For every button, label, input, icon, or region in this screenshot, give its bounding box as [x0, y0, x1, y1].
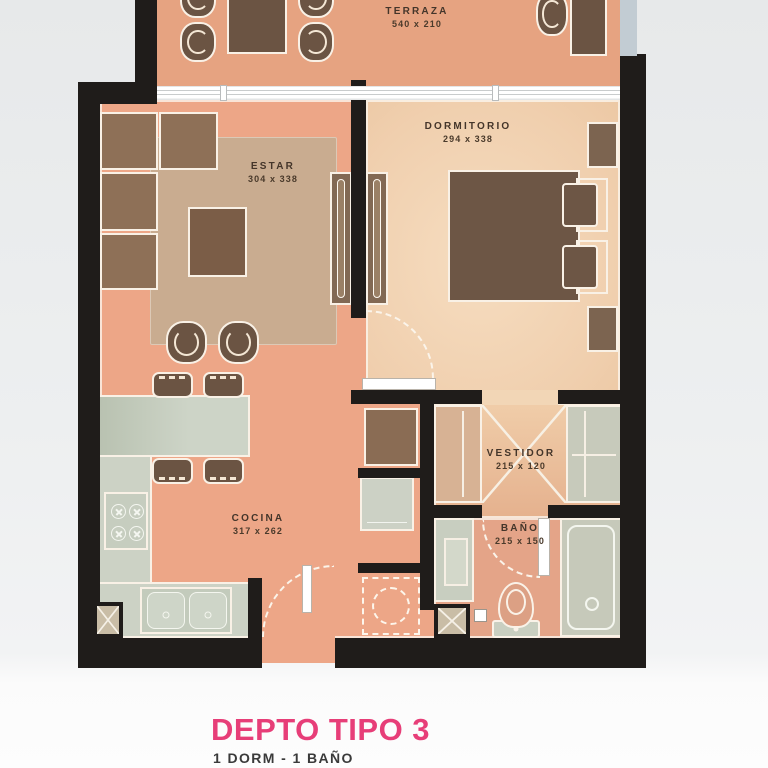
room-label-estar: ESTAR 304 x 338	[248, 161, 298, 184]
door-stop-fixture	[474, 609, 487, 622]
stove	[104, 492, 148, 550]
terrace-side-table	[570, 0, 607, 56]
terrace-lounge-chair	[536, 0, 568, 36]
plan-title: DEPTO TIPO 3	[211, 712, 430, 748]
kitchen-sink	[140, 587, 232, 634]
terrace-dining-table	[227, 0, 287, 54]
window-mullion-tick	[492, 85, 499, 101]
nightstand	[587, 122, 618, 168]
hall-shelf-divider-top	[358, 468, 420, 478]
stove-burner	[129, 526, 144, 541]
exterior-wall-left	[78, 82, 100, 668]
bedroom-door-leaf	[362, 378, 436, 390]
pillow	[562, 183, 598, 227]
window-mullion-tick	[220, 85, 227, 101]
hall-vestidor-wall	[420, 404, 434, 610]
stove-burner	[111, 526, 126, 541]
dresser	[364, 408, 418, 466]
bar-stool	[152, 372, 193, 398]
plan-subtitle: 1 DORM - 1 BAÑO	[213, 750, 354, 766]
room-label-bano: BAÑO 215 x 150	[495, 523, 545, 546]
terrace-chair	[180, 22, 216, 62]
vestidor-entrance-floor	[482, 390, 558, 405]
entry-wall-stub	[248, 578, 262, 640]
room-label-vestidor: VESTIDOR 215 x 120	[487, 448, 556, 471]
nightstand	[587, 306, 618, 352]
exterior-wall-bottom-left	[78, 638, 262, 668]
closet-right	[566, 405, 622, 503]
bedroom-south-wall-left	[351, 390, 482, 404]
sink-basin	[189, 592, 227, 629]
terrace-chair	[298, 22, 334, 62]
bed	[448, 170, 580, 302]
exterior-wall-right	[620, 54, 646, 668]
glass-railing	[620, 0, 637, 56]
sofa	[100, 233, 158, 290]
hall-shelf-divider-bottom	[358, 563, 420, 573]
stove-burner	[111, 504, 126, 519]
duct-shaft	[434, 604, 470, 638]
stove-burner	[129, 504, 144, 519]
duct-shaft	[93, 602, 123, 638]
kitchen-island	[98, 395, 250, 457]
sofa	[100, 172, 158, 231]
exterior-wall-bottom-right	[335, 638, 646, 668]
floor-plan-page: TERRAZA 540 x 210 ESTAR 304 x 338 DORMIT…	[0, 0, 768, 768]
entry-door-floor	[262, 634, 335, 663]
vestidor-bath-wall-right	[548, 505, 622, 518]
sink-basin	[147, 592, 185, 629]
coffee-table	[188, 207, 247, 277]
toilet	[498, 582, 534, 628]
media-cabinet	[330, 172, 352, 305]
pillow	[562, 245, 598, 289]
washing-machine	[360, 477, 414, 531]
armchair	[218, 321, 259, 364]
room-label-cocina: COCINA 317 x 262	[232, 513, 285, 536]
sofa	[159, 112, 218, 170]
wardrobe-cabinet	[366, 172, 388, 305]
room-label-terraza: TERRAZA 540 x 210	[385, 6, 448, 29]
closet-left	[434, 405, 482, 503]
room-label-dormitorio: DORMITORIO 294 x 338	[425, 121, 512, 144]
armchair	[166, 321, 207, 364]
sofa	[100, 112, 158, 170]
entry-door-leaf	[302, 565, 312, 613]
bathtub	[560, 518, 622, 637]
bar-stool	[203, 458, 244, 484]
future-appliance-slot	[362, 577, 420, 635]
bathroom-vanity-sink	[434, 518, 474, 602]
terrace-wall-left	[135, 0, 157, 86]
living-bedroom-divider-wall	[351, 80, 366, 318]
bedroom-south-wall-right	[558, 390, 622, 404]
bar-stool	[203, 372, 244, 398]
vestidor-bath-wall-left	[434, 505, 482, 518]
bar-stool	[152, 458, 193, 484]
